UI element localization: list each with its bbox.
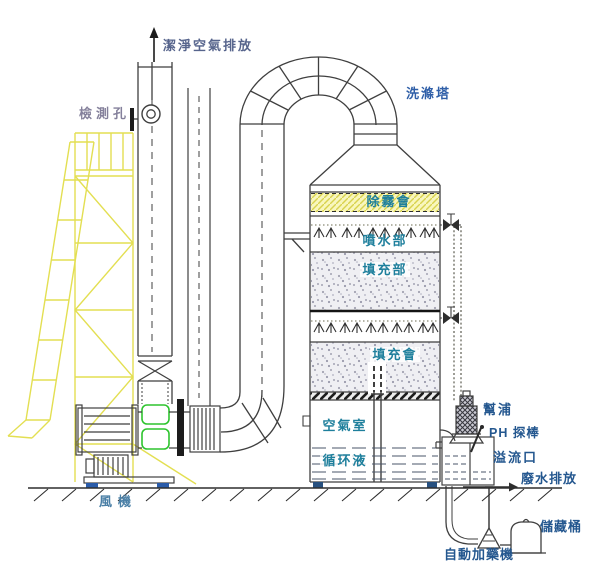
duct-support-bracket [284,233,310,252]
label-wastewater-discharge: 廢水排放 [521,471,577,487]
pump-tank [436,437,494,485]
dosing-system [446,486,546,553]
up-arrow-icon [150,27,159,62]
pump-assembly [440,391,483,443]
scaffold-top-box [75,133,133,176]
label-clean-air-discharge: 潔淨空氣排放 [163,38,253,54]
label-circulating-liquid: 循环液 [285,453,405,469]
label-storage-tank: 儲藏桶 [540,519,582,535]
drain-arrow-icon [509,483,518,492]
diagram-canvas [0,0,602,565]
test-port [130,105,160,131]
label-auto-doser: 自動加藥機 [444,547,514,563]
duct-flange [177,399,184,456]
packing-upper-band [311,252,439,310]
duct-right-leg [354,124,397,145]
tower-foot-left [313,482,323,488]
tower-foot-right [427,482,437,488]
ladder-rails [26,142,94,420]
label-ph-probe: PH 探棒 [489,426,540,441]
label-packing-lower: 填充會 [335,347,455,363]
label-pump: 幫浦 [483,402,513,418]
label-fan: 風機 [99,494,137,510]
label-overflow: 溢流口 [493,450,538,466]
test-port-circle [142,105,160,123]
scrubber-system-diagram: 潔淨空氣排放 檢測孔 洗滌塔 除霧會 噴水部 填充部 填充會 空氣室 循环液 幫… [0,0,602,565]
storage-tank-shape [511,520,541,554]
duct-inner-arc [284,95,354,125]
scrubber-tower-body [284,185,440,488]
label-spray-section: 噴水部 [325,233,445,249]
ribbed-silencer [190,406,220,452]
label-air-chamber: 空氣室 [285,418,405,434]
tower-hood [310,145,440,185]
valve-icon-upper [443,214,459,231]
ladder-rungs [26,180,88,420]
ladder-base [8,420,50,438]
auxiliary-duct [188,88,210,406]
label-test-port: 檢測孔 [79,106,130,122]
stack-transition [138,356,172,404]
duct-segments [251,57,387,110]
label-scrubber-tower: 洗滌塔 [406,86,451,102]
spray-nozzle-row-2 [314,323,438,333]
flex-connector [142,405,169,449]
label-demister: 除霧會 [329,194,449,210]
label-packing-upper: 填充部 [325,262,445,278]
doser-triangle [478,528,500,548]
valve-icon-lower [443,307,459,324]
